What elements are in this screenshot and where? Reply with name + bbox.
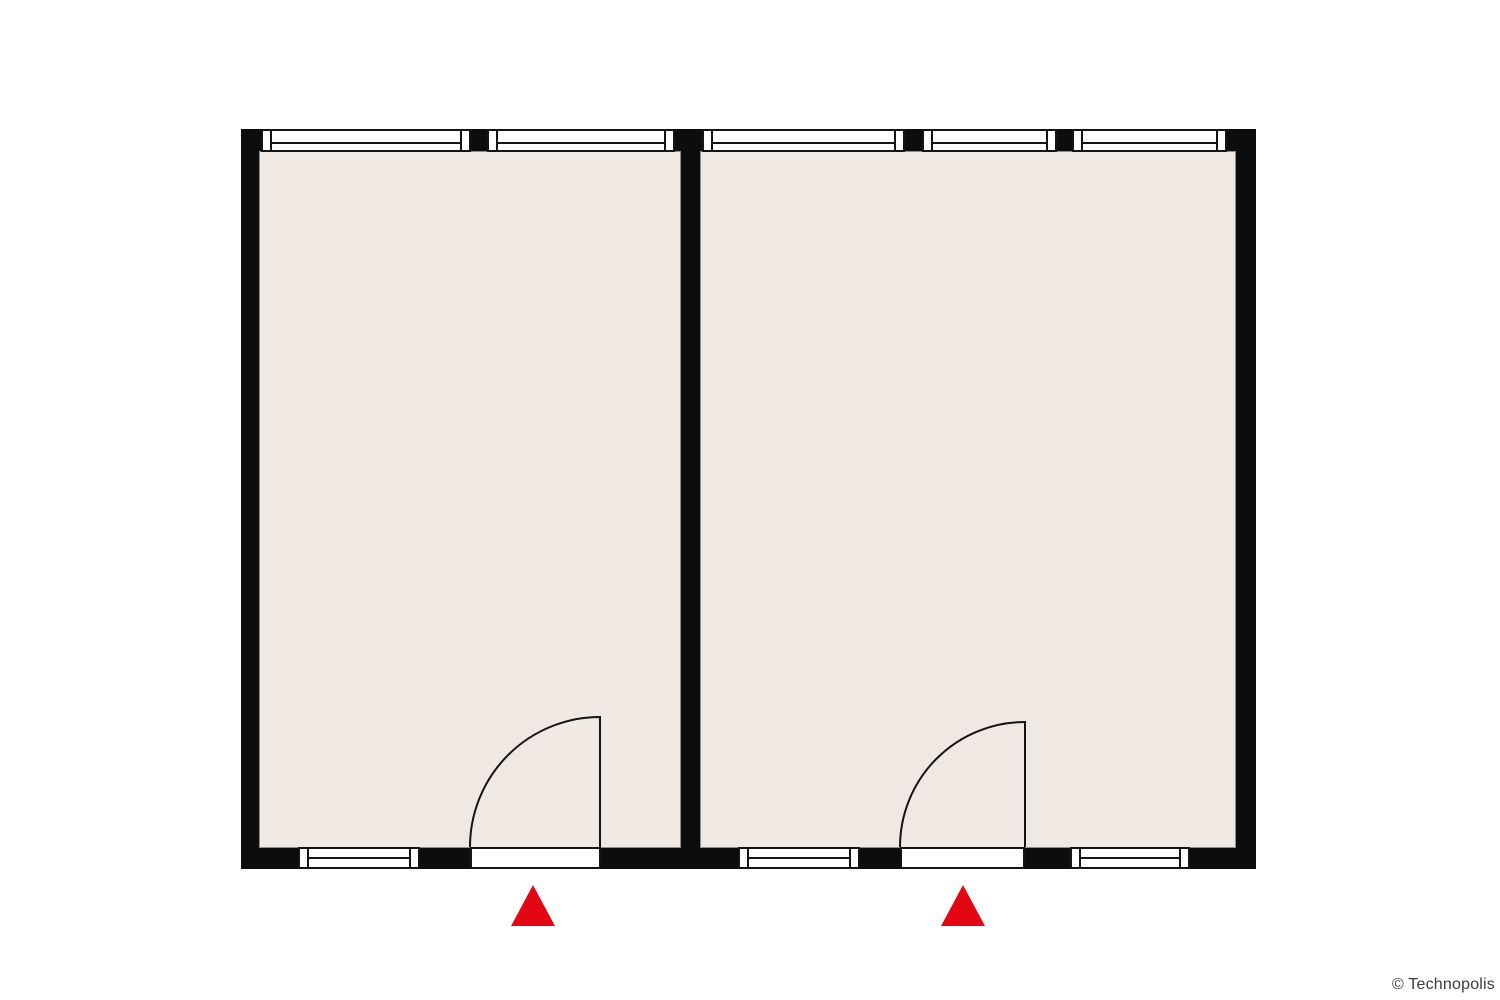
- window-frame-cap: [664, 131, 666, 150]
- window-pane-line: [749, 857, 849, 859]
- wall-left: [241, 129, 259, 869]
- wall-partition: [681, 129, 700, 869]
- window-pane-line: [309, 857, 409, 859]
- entrance-icon-right: [941, 885, 985, 926]
- window-pane-line: [1083, 142, 1216, 144]
- window-frame-cap: [1081, 131, 1083, 150]
- window-frame-cap: [270, 131, 272, 150]
- window-frame-cap: [849, 849, 851, 867]
- room-left: [259, 151, 681, 848]
- window-frame-cap: [1216, 131, 1218, 150]
- floorplan-canvas: © Technopolis: [0, 0, 1500, 1000]
- window-top-4: [922, 129, 1057, 152]
- door-opening-left: [470, 847, 601, 869]
- window-frame-cap: [496, 131, 498, 150]
- window-bottom-2: [738, 847, 860, 869]
- window-frame-cap: [931, 131, 933, 150]
- window-bottom-1: [298, 847, 420, 869]
- window-frame-cap: [1179, 849, 1181, 867]
- window-pane-line: [498, 142, 664, 144]
- window-bottom-3: [1070, 847, 1190, 869]
- window-frame-cap: [460, 131, 462, 150]
- window-frame-cap: [711, 131, 713, 150]
- window-top-5: [1072, 129, 1227, 152]
- window-frame-cap: [1046, 131, 1048, 150]
- window-frame-cap: [894, 131, 896, 150]
- copyright-text: © Technopolis: [1392, 976, 1495, 994]
- window-top-2: [487, 129, 675, 152]
- window-pane-line: [1081, 857, 1179, 859]
- window-pane-line: [933, 142, 1046, 144]
- window-pane-line: [272, 142, 460, 144]
- wall-right: [1236, 129, 1256, 869]
- entrance-icon-left: [511, 885, 555, 926]
- room-right: [700, 151, 1236, 848]
- window-frame-cap: [409, 849, 411, 867]
- window-top-3: [702, 129, 905, 152]
- window-top-1: [261, 129, 471, 152]
- door-opening-right: [900, 847, 1025, 869]
- window-pane-line: [713, 142, 894, 144]
